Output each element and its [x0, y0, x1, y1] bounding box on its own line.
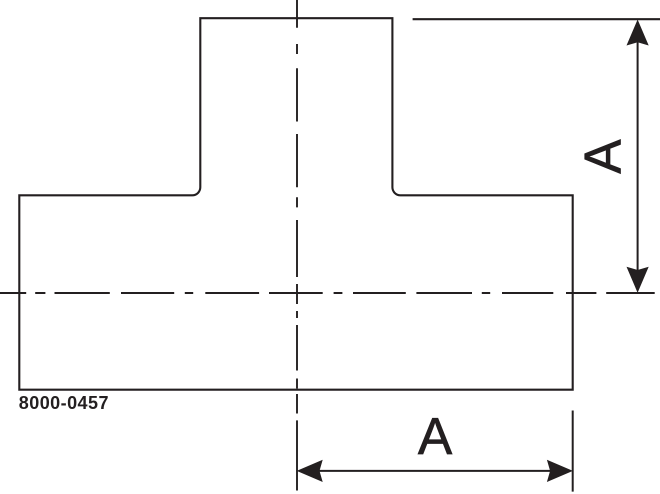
svg-text:A: A [418, 407, 453, 465]
svg-text:A: A [574, 139, 632, 174]
svg-text:8000-0457: 8000-0457 [19, 393, 109, 413]
